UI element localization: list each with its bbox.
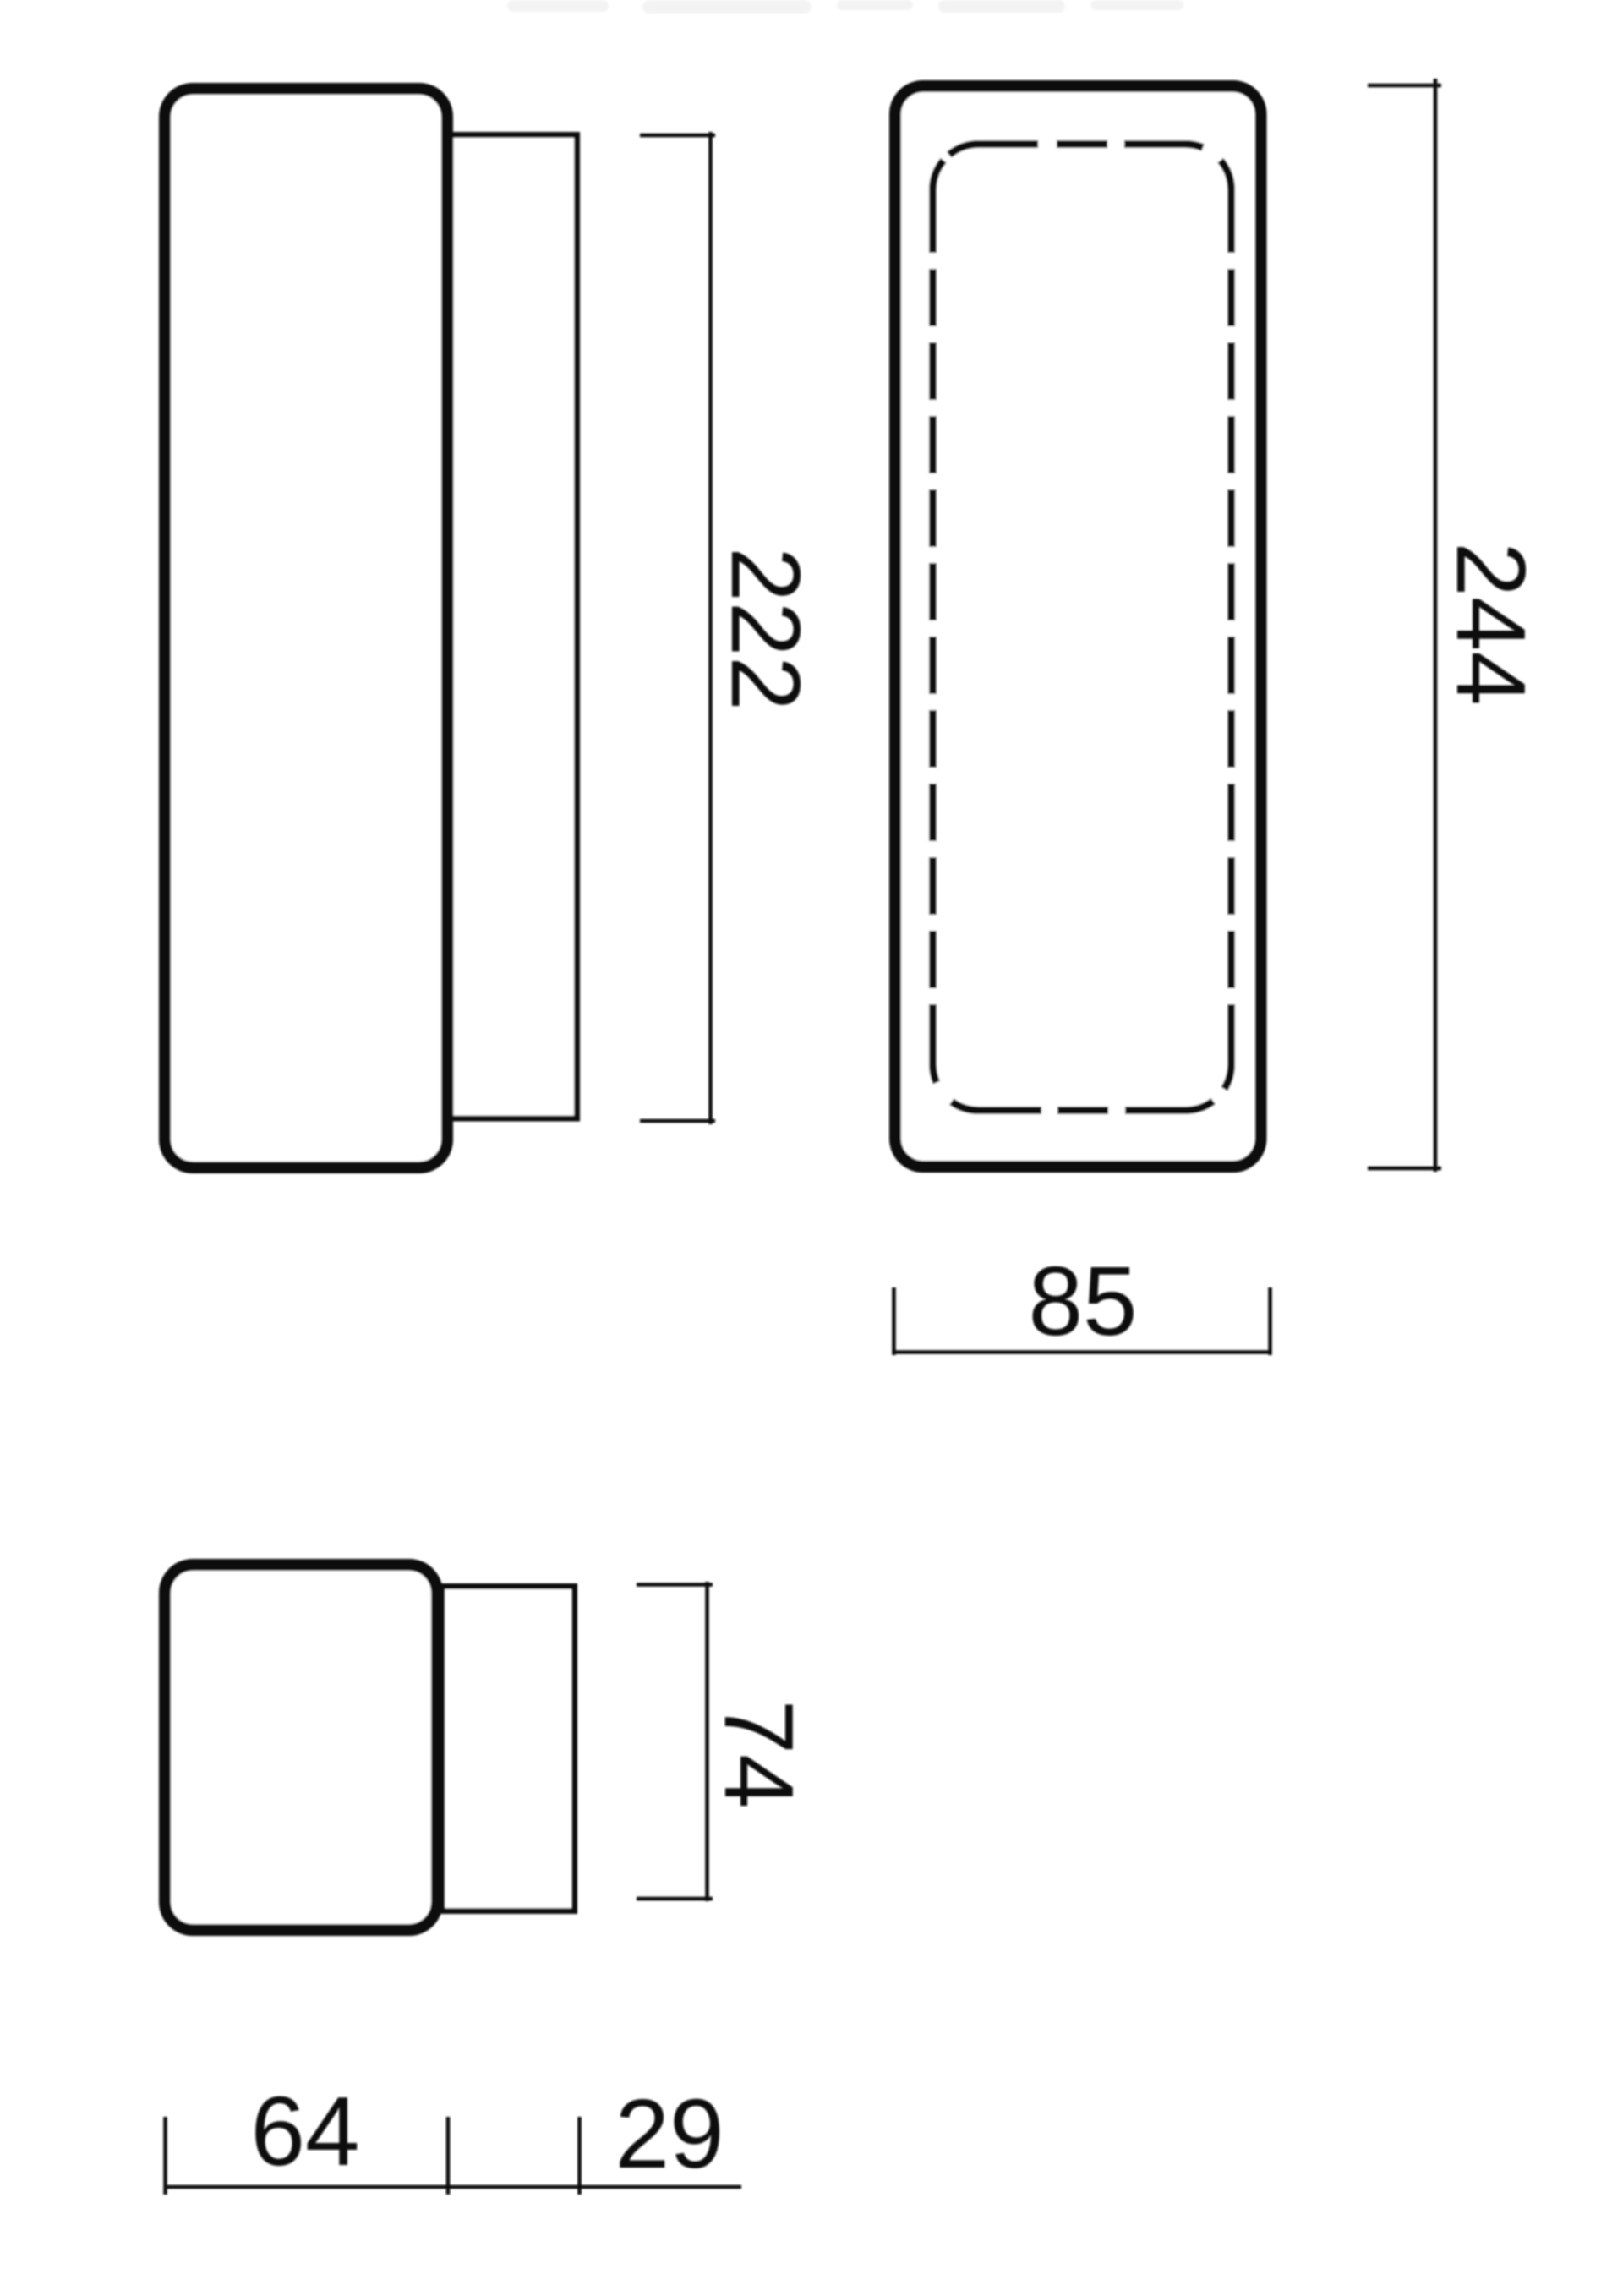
- svg-text:64: 64: [250, 2076, 359, 2186]
- svg-text:244: 244: [1436, 542, 1546, 706]
- svg-text:85: 85: [1028, 1246, 1137, 1356]
- svg-text:74: 74: [704, 1699, 814, 1808]
- svg-text:29: 29: [615, 2079, 724, 2189]
- svg-text:222: 222: [711, 547, 821, 711]
